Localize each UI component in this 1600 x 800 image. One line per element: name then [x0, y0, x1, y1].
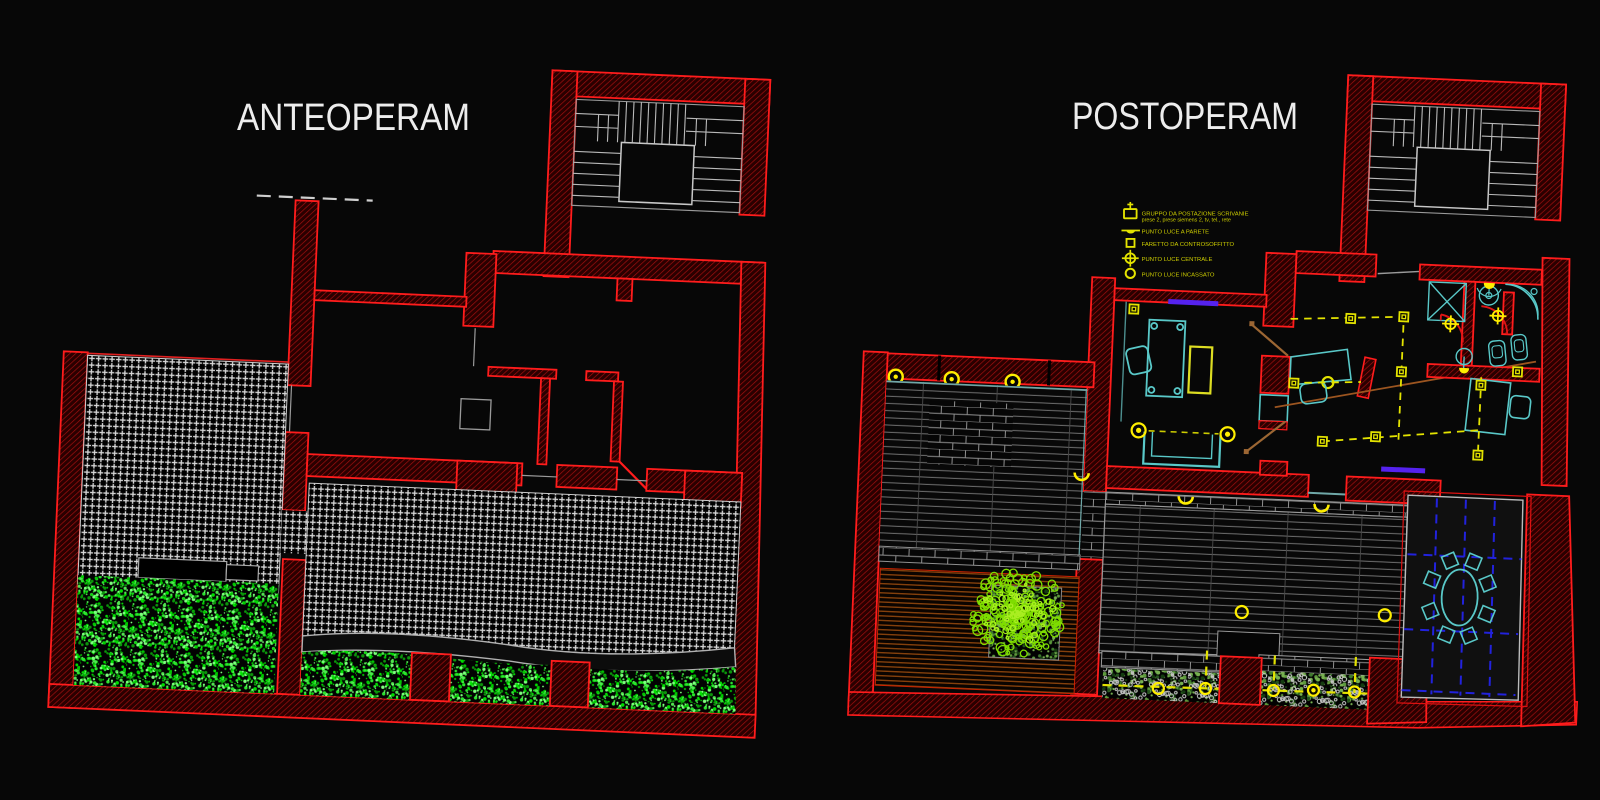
svg-text:GRUPPO DA POSTAZIONE SCRIVANIE: GRUPPO DA POSTAZIONE SCRIVANIE [1142, 211, 1249, 217]
svg-text:POSTOPERAM: POSTOPERAM [1072, 96, 1298, 138]
svg-text:FARETTO DA CONTROSOFFITTO: FARETTO DA CONTROSOFFITTO [1142, 242, 1235, 248]
svg-text:PUNTO LUCE INCASSATO: PUNTO LUCE INCASSATO [1142, 272, 1215, 278]
svg-text:PUNTO LUCE CENTRALE: PUNTO LUCE CENTRALE [1142, 257, 1213, 263]
svg-text:prese 2, prese siemens 2, tv,: prese 2, prese siemens 2, tv, tel., rete [1142, 218, 1231, 224]
svg-text:PUNTO LUCE A PARETE: PUNTO LUCE A PARETE [1142, 229, 1209, 235]
svg-text:ANTEOPERAM: ANTEOPERAM [237, 97, 470, 139]
